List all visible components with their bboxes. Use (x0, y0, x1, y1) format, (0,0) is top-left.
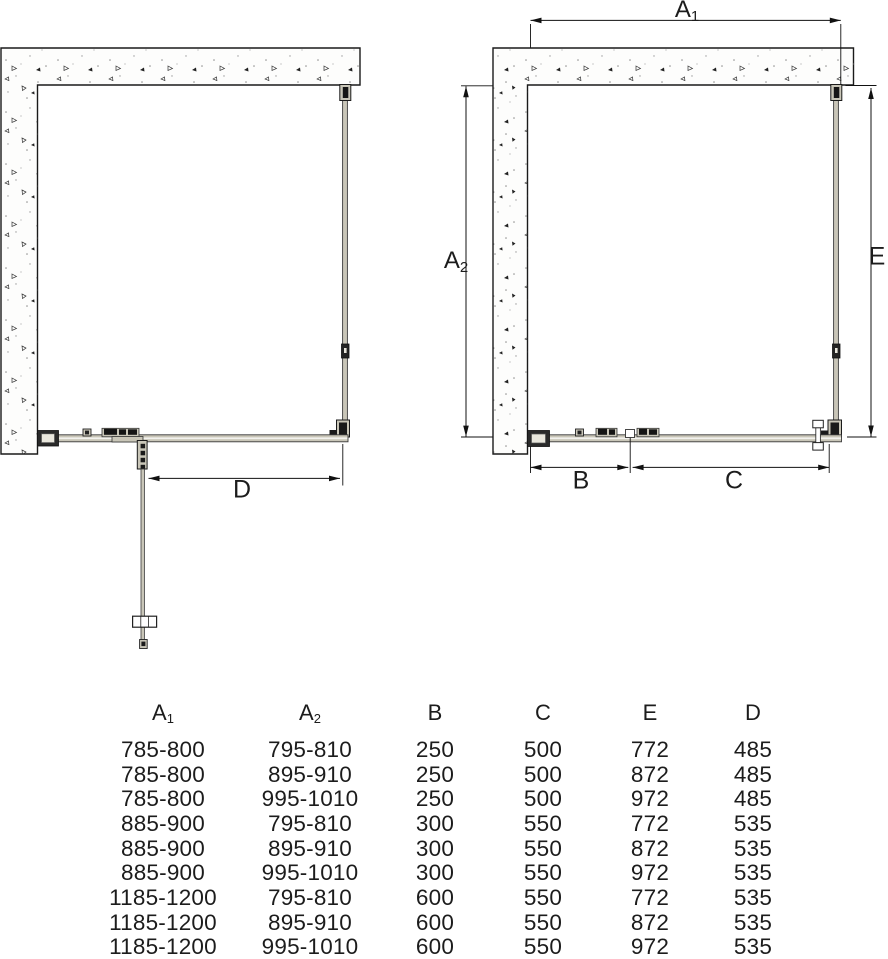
label-c: C (725, 469, 743, 494)
table-row: 1185-1200895-910600550872535 (83, 910, 817, 935)
fixed-glass-panel (831, 85, 842, 437)
table-cell: 550 (493, 936, 593, 959)
table-cell: 485 (707, 739, 799, 762)
table-cell: 250 (377, 764, 493, 787)
table-cell: 535 (707, 887, 799, 910)
table-cell: 600 (377, 936, 493, 959)
table-cell: 772 (593, 739, 707, 762)
table-row: 785-800995-1010250500972485 (83, 787, 817, 812)
wall-section (493, 48, 854, 454)
table-cell: 885-900 (83, 838, 243, 861)
table-cell: 895-910 (243, 764, 377, 787)
label-a1: A1 (675, 0, 699, 24)
label-a2: A2 (444, 249, 468, 275)
table-cell: 795-810 (243, 813, 377, 836)
dimension-table: A1 A2 B C E D 785-800795-810250500772485… (83, 699, 817, 727)
table-cell: 250 (377, 739, 493, 762)
label-b: B (573, 469, 590, 494)
table-cell: 795-810 (243, 739, 377, 762)
table-cell: 535 (707, 936, 799, 959)
table-cell: 485 (707, 764, 799, 787)
table-cell: 300 (377, 838, 493, 861)
label-e: E (869, 245, 886, 270)
table-cell: 250 (377, 788, 493, 811)
table-cell: 300 (377, 813, 493, 836)
table-cell: 550 (493, 813, 593, 836)
table-cell: 785-800 (83, 788, 243, 811)
table-cell: 872 (593, 912, 707, 935)
table-row: 785-800795-810250500772485 (83, 738, 817, 763)
table-row: 885-900995-1010300550972535 (83, 861, 817, 886)
page: A1 A2 E B C D A1 A2 B C E D 785-800795-8… (0, 0, 888, 959)
table-cell: 600 (377, 912, 493, 935)
technical-drawing (0, 0, 888, 680)
table-cell: 500 (493, 788, 593, 811)
col-header-a1: A1 (83, 702, 243, 725)
table-cell: 995-1010 (243, 862, 377, 885)
table-cell: 300 (377, 862, 493, 885)
col-header-c: C (493, 702, 593, 725)
table-cell: 1185-1200 (83, 936, 243, 959)
table-cell: 500 (493, 739, 593, 762)
table-cell: 772 (593, 887, 707, 910)
fixed-glass-panel (340, 85, 351, 437)
door-pivot-hinge (137, 441, 147, 470)
table-cell: 995-1010 (243, 788, 377, 811)
table-cell: 550 (493, 912, 593, 935)
table-cell: 485 (707, 788, 799, 811)
wall-bracket (38, 431, 59, 447)
table-cell: 535 (707, 862, 799, 885)
table-row: 885-900795-810300550772535 (83, 812, 817, 837)
table-cell: 895-910 (243, 912, 377, 935)
table-cell: 600 (377, 887, 493, 910)
table-header-row: A1 A2 B C E D (83, 699, 817, 727)
table-cell: 1185-1200 (83, 912, 243, 935)
plan-view-open-door (1, 48, 360, 649)
table-cell: 500 (493, 764, 593, 787)
table-cell: 550 (493, 887, 593, 910)
table-cell: 1185-1200 (83, 887, 243, 910)
table-cell: 995-1010 (243, 936, 377, 959)
wall-section (1, 48, 360, 454)
table-row: 785-800895-910250500872485 (83, 763, 817, 788)
table-cell: 550 (493, 862, 593, 885)
table-cell: 885-900 (83, 813, 243, 836)
wall-bracket (528, 431, 550, 447)
col-header-b: B (377, 702, 493, 725)
table-row: 885-900895-910300550872535 (83, 837, 817, 862)
table-cell: 785-800 (83, 764, 243, 787)
table-cell: 535 (707, 912, 799, 935)
table-row: 1185-1200995-1010600550972535 (83, 935, 817, 959)
label-d: D (233, 478, 251, 503)
table-cell: 785-800 (83, 739, 243, 762)
table-cell: 535 (707, 838, 799, 861)
col-header-a2: A2 (243, 702, 377, 725)
col-header-d: D (707, 702, 799, 725)
table-cell: 972 (593, 788, 707, 811)
table-cell: 795-810 (243, 887, 377, 910)
table-cell: 872 (593, 764, 707, 787)
table-cell: 872 (593, 838, 707, 861)
table-cell: 972 (593, 862, 707, 885)
table-row: 1185-1200795-810600550772535 (83, 886, 817, 911)
table-cell: 550 (493, 838, 593, 861)
table-cell: 895-910 (243, 838, 377, 861)
table-cell: 885-900 (83, 862, 243, 885)
table-cell: 772 (593, 813, 707, 836)
door-handle (133, 616, 157, 627)
plan-view-closed-door (461, 18, 877, 473)
bottom-rail (528, 435, 842, 442)
dimension-table-body: 785-800795-810250500772485785-800895-910… (83, 738, 817, 959)
table-cell: 535 (707, 813, 799, 836)
col-header-e: E (593, 702, 707, 725)
table-cell: 972 (593, 936, 707, 959)
